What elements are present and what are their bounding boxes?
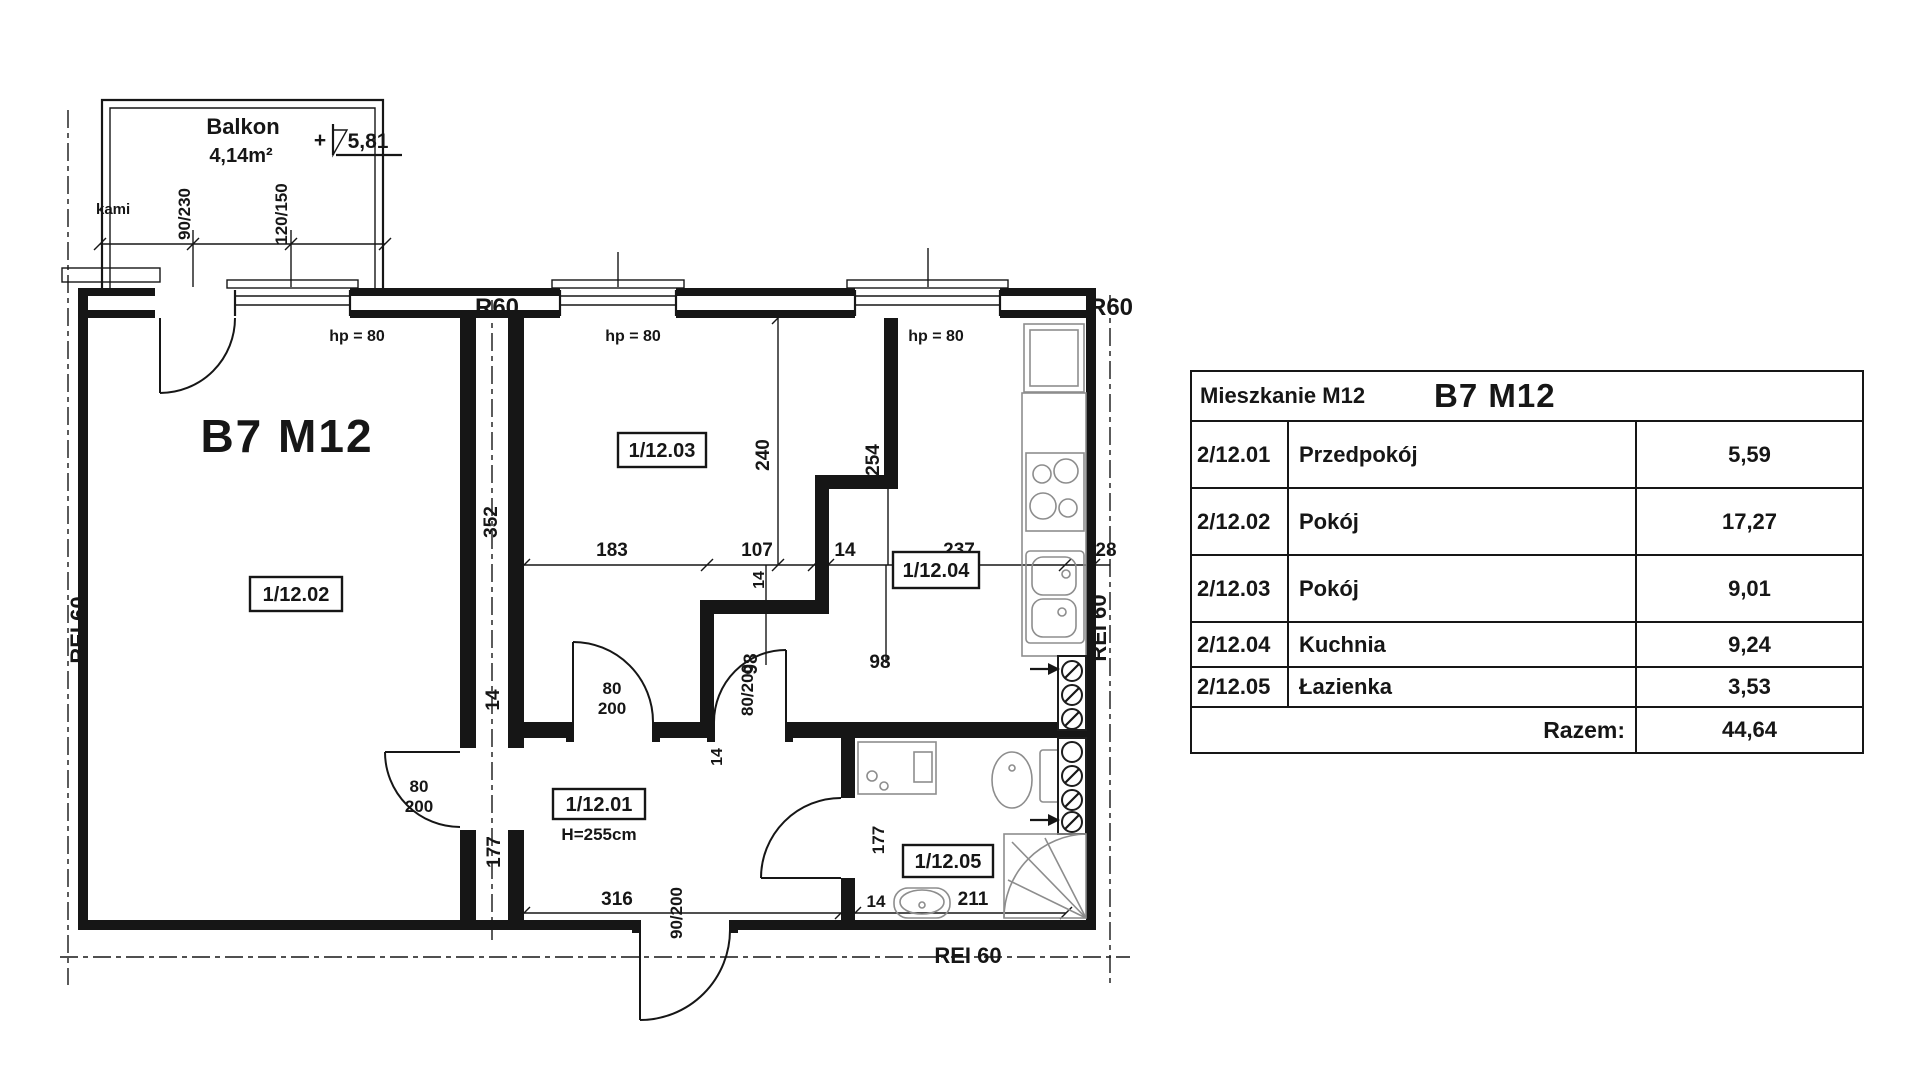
- kitchen-fixtures: [1022, 324, 1086, 730]
- dim-balcony-window: 120/150: [272, 183, 291, 244]
- dim-14-bath: 14: [867, 892, 886, 911]
- room-height-note: H=255cm: [561, 825, 636, 844]
- row-area: 17,27: [1637, 489, 1862, 554]
- fire-label-r60-b: R60: [1089, 294, 1133, 321]
- dim-177-joint: 177: [484, 836, 505, 868]
- room-label-kitchen: 1/12.04: [903, 560, 971, 582]
- dim-balcony-door: 90/230: [175, 188, 194, 240]
- washing-machine: [858, 742, 936, 794]
- table-header-left: Mieszkanie M12: [1200, 383, 1365, 409]
- neighbor-slab: [62, 268, 160, 282]
- dim-90-200: 90/200: [667, 887, 686, 939]
- dim-door-80-200: 80/200: [738, 664, 757, 716]
- apartment-title: B7 M12: [200, 410, 373, 462]
- table-row: 2/12.05 Łazienka 3,53: [1192, 668, 1862, 708]
- row-name: Przedpokój: [1289, 422, 1637, 487]
- fire-label-rei-right: REI 60: [1086, 594, 1111, 661]
- row-name: Pokój: [1289, 556, 1637, 621]
- interior-walls: [460, 318, 1086, 933]
- dim-316: 316: [601, 889, 633, 910]
- row-name: Kuchnia: [1289, 623, 1637, 666]
- dim-door-80: 80: [410, 777, 429, 796]
- row-code: 2/12.01: [1192, 422, 1289, 487]
- area-table: Mieszkanie M12 B7 M12 2/12.01 Przedpokój…: [1190, 370, 1864, 754]
- row-area: 9,01: [1637, 556, 1862, 621]
- fridge: [1024, 324, 1084, 392]
- dim-28: 28: [1095, 540, 1116, 561]
- level-value: 5,81: [348, 130, 389, 153]
- balcony-name: Balkon: [206, 114, 279, 139]
- row-name: Łazienka: [1289, 668, 1637, 706]
- room-label-living: 1/12.02: [263, 584, 330, 606]
- row-area: 3,53: [1637, 668, 1862, 706]
- fire-label-r60-a: R60: [475, 294, 519, 321]
- dim-14-hall: 14: [709, 748, 726, 766]
- table-total-row: Razem: 44,64: [1192, 708, 1862, 752]
- sill-label-2: hp = 80: [605, 328, 661, 345]
- room-label-room3: 1/12.03: [629, 440, 696, 462]
- table-row: 2/12.01 Przedpokój 5,59: [1192, 422, 1862, 489]
- total-value: 44,64: [1637, 708, 1862, 752]
- top-wall-openings: [155, 287, 1000, 319]
- vent-shaft-bathroom: [1030, 738, 1086, 834]
- total-label: Razem:: [1192, 708, 1637, 752]
- dim-14-niche: 14: [751, 571, 768, 589]
- table-row: 2/12.03 Pokój 9,01: [1192, 556, 1862, 623]
- table-row: 2/12.02 Pokój 17,27: [1192, 489, 1862, 556]
- dim-211: 211: [958, 889, 989, 910]
- balcony-door: [160, 318, 235, 393]
- dim-98-b: 98: [869, 652, 890, 673]
- dim-183: 183: [596, 540, 628, 561]
- room-label-hall: 1/12.01: [566, 794, 633, 816]
- shower: [1004, 834, 1086, 918]
- fire-label-rei-left: REI 60: [66, 596, 91, 663]
- dim-door-200: 200: [405, 797, 433, 816]
- balcony-area: 4,14m²: [209, 145, 273, 167]
- row-code: 2/12.03: [1192, 556, 1289, 621]
- entrance-door: [640, 930, 730, 1020]
- level-plus: +: [314, 129, 326, 152]
- row-area: 9,24: [1637, 623, 1862, 666]
- vent-shaft-kitchen: [1030, 656, 1086, 730]
- bathroom-door: [761, 798, 841, 878]
- table-header-title: B7 M12: [1434, 377, 1556, 415]
- floor-plan-page: Balkon 4,14m² + 5,81 kami 90/230 120/150…: [0, 0, 1920, 1080]
- room-label-bathroom: 1/12.05: [915, 851, 982, 873]
- dim-107: 107: [741, 540, 773, 561]
- table-row: 2/12.04 Kuchnia 9,24: [1192, 623, 1862, 668]
- row-code: 2/12.04: [1192, 623, 1289, 666]
- stove: [1026, 453, 1084, 531]
- row-area: 5,59: [1637, 422, 1862, 487]
- dim-352: 352: [481, 506, 502, 538]
- sill-label-1: hp = 80: [329, 328, 385, 345]
- dim-14-joint: 14: [483, 689, 504, 711]
- dim-door-80-b: 80: [603, 679, 622, 698]
- dim-240: 240: [753, 439, 774, 471]
- sill-label-3: hp = 80: [908, 328, 964, 345]
- row-name: Pokój: [1289, 489, 1637, 554]
- dim-177-bath: 177: [869, 826, 888, 854]
- dim-door-200-b: 200: [598, 699, 626, 718]
- fire-label-rei-bottom: REI 60: [934, 943, 1001, 968]
- row-code: 2/12.05: [1192, 668, 1289, 706]
- side-label: kami: [96, 201, 130, 218]
- dim-254: 254: [863, 444, 884, 476]
- table-header: Mieszkanie M12 B7 M12: [1192, 372, 1862, 422]
- dim-14-wall: 14: [834, 540, 856, 561]
- row-code: 2/12.02: [1192, 489, 1289, 554]
